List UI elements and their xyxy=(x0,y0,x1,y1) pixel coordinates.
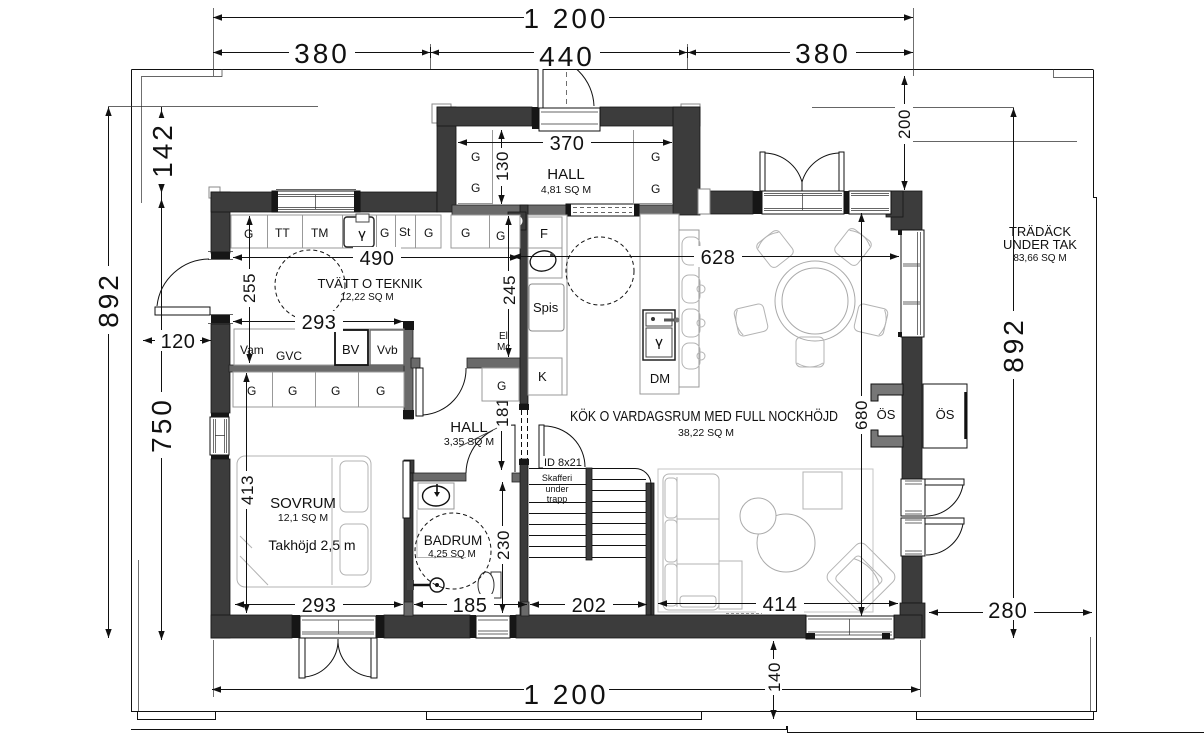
svg-text:Spis: Spis xyxy=(533,300,559,315)
svg-text:ID 8x21: ID 8x21 xyxy=(544,457,582,469)
svg-text:G: G xyxy=(497,379,506,393)
svg-text:G: G xyxy=(461,226,470,240)
svg-text:1 200: 1 200 xyxy=(523,679,608,710)
svg-text:BADRUM: BADRUM xyxy=(424,533,483,548)
svg-text:130: 130 xyxy=(493,151,512,181)
svg-text:Skafferi: Skafferi xyxy=(542,473,572,483)
svg-text:380: 380 xyxy=(795,38,851,69)
svg-text:380: 380 xyxy=(294,38,350,69)
svg-text:St: St xyxy=(399,225,411,239)
svg-text:120: 120 xyxy=(161,331,196,353)
svg-text:Vvb: Vvb xyxy=(377,343,398,357)
svg-text:12,22 SQ M: 12,22 SQ M xyxy=(340,292,393,303)
svg-text:G: G xyxy=(331,384,340,398)
svg-text:G: G xyxy=(288,384,297,398)
svg-text:370: 370 xyxy=(550,133,585,155)
svg-text:UNDER TAK: UNDER TAK xyxy=(1003,237,1077,252)
svg-text:HALL: HALL xyxy=(450,419,488,436)
svg-text:440: 440 xyxy=(539,41,595,72)
svg-text:4,81 SQ M: 4,81 SQ M xyxy=(541,184,591,196)
svg-text:G: G xyxy=(496,229,505,243)
svg-text:293: 293 xyxy=(302,595,337,617)
svg-text:TT: TT xyxy=(275,226,290,240)
svg-text:4,25 SQ M: 4,25 SQ M xyxy=(428,549,476,560)
svg-text:414: 414 xyxy=(763,594,798,616)
svg-text:ÖS: ÖS xyxy=(936,407,955,422)
svg-text:HALL: HALL xyxy=(547,166,585,183)
svg-text:under: under xyxy=(545,484,568,494)
svg-text:Mc: Mc xyxy=(497,342,510,353)
svg-text:280: 280 xyxy=(988,598,1028,623)
svg-text:Vam: Vam xyxy=(240,343,264,357)
svg-text:1 200: 1 200 xyxy=(523,3,608,34)
svg-text:750: 750 xyxy=(146,397,177,453)
svg-text:trapp: trapp xyxy=(547,494,568,504)
svg-text:181: 181 xyxy=(493,397,512,427)
svg-text:G: G xyxy=(247,384,256,398)
svg-text:G: G xyxy=(471,181,480,195)
svg-text:TM: TM xyxy=(311,226,328,240)
svg-text:SOVRUM: SOVRUM xyxy=(270,495,336,512)
svg-text:G: G xyxy=(651,150,660,164)
svg-text:200: 200 xyxy=(895,109,914,139)
svg-text:G: G xyxy=(651,182,660,196)
svg-text:230: 230 xyxy=(494,530,513,560)
svg-text:142: 142 xyxy=(147,122,178,178)
svg-text:892: 892 xyxy=(998,317,1029,373)
svg-text:628: 628 xyxy=(701,247,736,269)
svg-text:ÖS: ÖS xyxy=(877,407,896,422)
svg-text:38,22 SQ M: 38,22 SQ M xyxy=(678,427,734,439)
svg-text:255: 255 xyxy=(240,273,259,303)
svg-text:Takhöjd 2,5 m: Takhöjd 2,5 m xyxy=(268,537,355,553)
svg-text:F: F xyxy=(540,226,548,241)
svg-text:83,66 SQ M: 83,66 SQ M xyxy=(1013,253,1066,264)
svg-text:G: G xyxy=(380,226,389,240)
svg-text:680: 680 xyxy=(852,400,871,430)
svg-text:3,35 SQ M: 3,35 SQ M xyxy=(444,436,494,448)
svg-text:G: G xyxy=(376,384,385,398)
svg-text:140: 140 xyxy=(765,662,784,692)
svg-text:BV: BV xyxy=(342,342,360,357)
svg-text:892: 892 xyxy=(93,272,124,328)
svg-text:202: 202 xyxy=(572,595,607,617)
svg-text:185: 185 xyxy=(453,595,488,617)
svg-text:245: 245 xyxy=(500,275,519,305)
svg-text:KÖK O VARDAGSRUM MED FULL NOCK: KÖK O VARDAGSRUM MED FULL NOCKHÖJD xyxy=(570,407,838,425)
svg-text:GVC: GVC xyxy=(276,349,302,363)
svg-text:El: El xyxy=(499,331,508,342)
svg-text:TVÄTT O TEKNIK: TVÄTT O TEKNIK xyxy=(318,276,423,291)
svg-text:G: G xyxy=(424,226,433,240)
svg-text:G: G xyxy=(471,150,480,164)
svg-text:413: 413 xyxy=(238,475,257,505)
svg-text:12,1 SQ M: 12,1 SQ M xyxy=(278,512,328,524)
svg-text:G: G xyxy=(244,227,253,241)
svg-text:K: K xyxy=(538,369,547,384)
svg-text:490: 490 xyxy=(360,248,395,270)
svg-text:DM: DM xyxy=(650,371,670,386)
svg-text:293: 293 xyxy=(302,312,337,334)
